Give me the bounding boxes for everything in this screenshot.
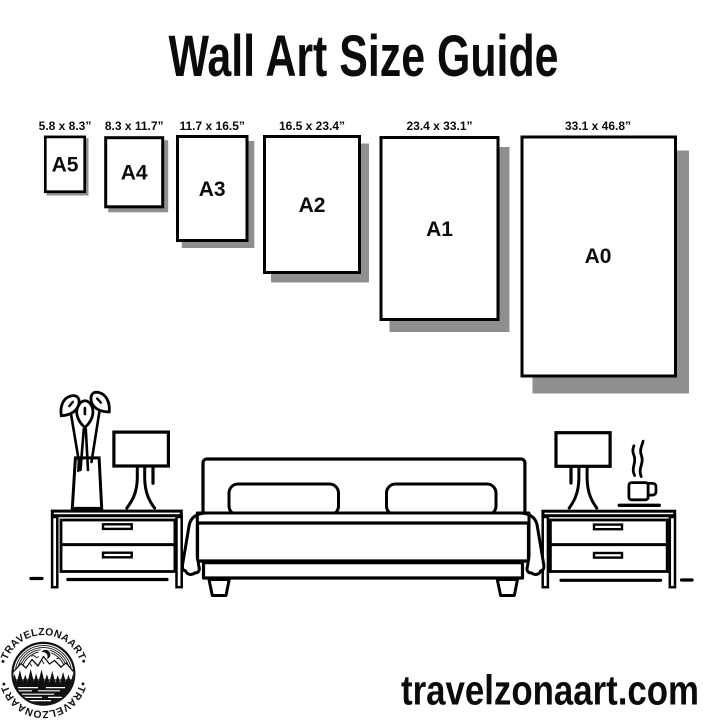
svg-text:A0: A0	[585, 245, 612, 268]
svg-text:Wall Art Size Guide: Wall Art Size Guide	[169, 24, 559, 89]
svg-text:23.4 x 33.1”: 23.4 x 33.1”	[406, 119, 472, 133]
svg-text:11.7 x 16.5”: 11.7 x 16.5”	[180, 119, 245, 133]
svg-text:8.3 x 11.7”: 8.3 x 11.7”	[105, 119, 164, 133]
svg-text:16.5 x 23.4”: 16.5 x 23.4”	[279, 119, 345, 133]
svg-text:A3: A3	[199, 178, 226, 201]
svg-text:A4: A4	[121, 162, 148, 185]
svg-text:travelzonaart.com: travelzonaart.com	[401, 667, 699, 714]
svg-text:33.1 x 46.8”: 33.1 x 46.8”	[565, 119, 631, 133]
svg-text:A1: A1	[426, 218, 453, 241]
svg-text:A5: A5	[52, 154, 79, 177]
svg-text:A2: A2	[299, 194, 326, 217]
svg-text:5.8 x 8.3”: 5.8 x 8.3”	[39, 119, 92, 133]
